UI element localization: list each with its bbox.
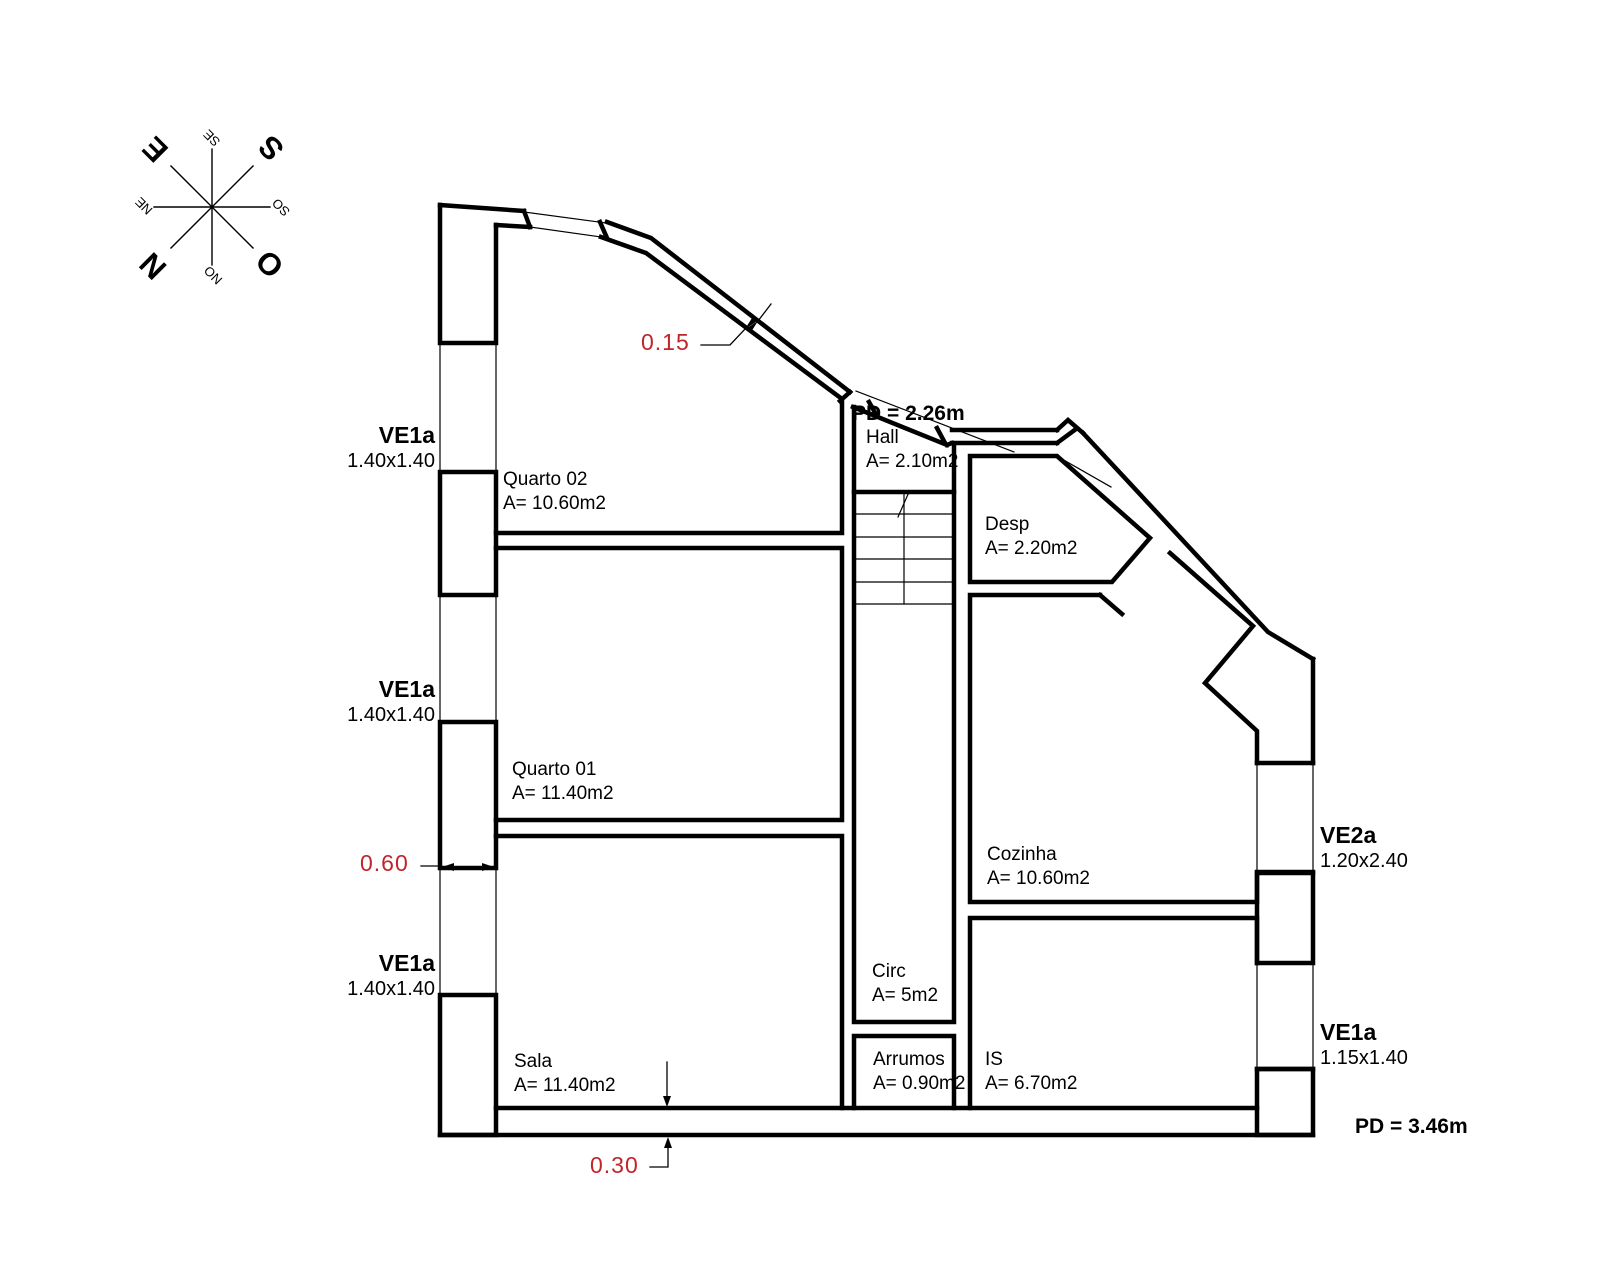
compass-north-label: N [133,246,174,287]
compass-east-label: E [135,130,174,169]
room-label-quarto01: Quarto 01 A= 11.40m2 [512,758,614,806]
dimension-graphics [421,304,771,1167]
room-area: A= 11.40m2 [514,1074,616,1098]
room-outline-cozinha [1100,595,1122,614]
room-label-sala: Sala A= 11.40m2 [514,1050,616,1098]
wall-pier [1257,1069,1313,1135]
compass-arm [171,207,212,248]
window-label-west1: VE1a 1.40x1.40 [295,422,435,474]
wall-pier [440,995,496,1135]
dimension-diagonal-wall: 0.15 [641,329,690,356]
room-name: Arrumos [873,1048,965,1072]
compass-arm [183,207,241,265]
floor-plan-drawing: N S E O NE SE SO NO [0,0,1600,1280]
room-name: Quarto 01 [512,758,614,782]
exterior-wall [440,205,524,211]
dimension-south-wall: 0.30 [590,1152,639,1179]
compass-arm [212,166,253,207]
compass-arm [154,178,212,236]
exterior-wall [1083,433,1313,659]
window-label-west2: VE1a 1.40x1.40 [295,676,435,728]
room-area: A= 11.40m2 [512,782,614,806]
wall-jog [1057,429,1076,443]
compass-arm [171,166,212,207]
compass-arm [212,207,253,248]
exterior-wall [496,225,530,227]
room-label-cozinha: Cozinha A= 10.60m2 [987,843,1090,891]
room-area: A= 2.10m2 [866,450,958,474]
floor-plan-canvas: N S E O NE SE SO NO [0,0,1600,1280]
window-size: 1.40x1.40 [295,703,435,728]
window-code: VE2a [1320,822,1408,849]
room-name: Cozinha [987,843,1090,867]
exterior-wall [601,237,842,399]
wall-pier [440,472,496,595]
window-code: VE1a [295,422,435,449]
ceiling-height-hall: PD = 2.26m [852,402,965,426]
compass-arm [212,178,270,236]
compass-northeast-label: NE [132,194,156,218]
compass-southwest-label: SO [269,195,293,219]
window-size: 1.15x1.40 [1320,1046,1408,1071]
window-code: VE1a [295,676,435,703]
exterior-wall [607,222,850,392]
room-label-hall: Hall A= 2.10m2 [866,426,958,474]
ceiling-height-main: PD = 3.46m [1355,1115,1468,1139]
wall-pier [440,722,496,868]
room-area: A= 10.60m2 [987,867,1090,891]
room-label-arrumos: Arrumos A= 0.90m2 [873,1048,965,1096]
wall-pier [440,205,496,343]
room-name: Desp [985,513,1077,537]
compass-south-label: S [251,128,290,167]
window-label-east2: VE1a 1.15x1.40 [1320,1019,1408,1071]
window-size: 1.20x2.40 [1320,849,1408,874]
room-name: Circ [872,960,938,984]
room-area: A= 0.90m2 [873,1072,965,1096]
room-name: Hall [866,426,958,450]
window-label-east1: VE2a 1.20x2.40 [1320,822,1408,874]
room-area: A= 2.20m2 [985,537,1077,561]
compass-west-label: O [249,243,291,285]
compass-northwest-label: NO [201,263,225,287]
compass-rose: N S E O NE SE SO NO [76,71,349,344]
dimension-west-wall: 0.60 [360,850,409,877]
room-label-circ: Circ A= 5m2 [872,960,938,1008]
window-label-west3: VE1a 1.40x1.40 [295,950,435,1002]
room-area: A= 10.60m2 [503,492,606,516]
window-code: VE1a [1320,1019,1408,1046]
window-size: 1.40x1.40 [295,977,435,1002]
window-code: VE1a [295,950,435,977]
room-label-is: IS A= 6.70m2 [985,1048,1077,1096]
room-area: A= 6.70m2 [985,1072,1077,1096]
room-label-quarto02: Quarto 02 A= 10.60m2 [503,468,606,516]
room-name: Quarto 02 [503,468,606,492]
wall-pier [1257,872,1313,963]
room-name: Sala [514,1050,616,1074]
exterior-wall [1170,553,1257,763]
compass-southeast-label: SE [200,126,223,149]
room-name: IS [985,1048,1077,1072]
room-label-desp: Desp A= 2.20m2 [985,513,1077,561]
room-area: A= 5m2 [872,984,938,1008]
compass-arm [183,149,241,207]
window-size: 1.40x1.40 [295,449,435,474]
